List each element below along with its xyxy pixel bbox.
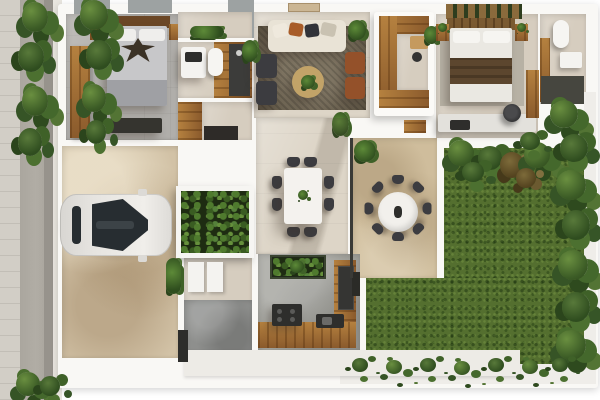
- grass-fringe: [352, 358, 368, 372]
- stair-tread-2: [207, 262, 223, 292]
- bathroom1-toilet: [208, 48, 223, 76]
- bathroom2-vanity: [560, 52, 582, 68]
- side-hedge-bush: [556, 170, 586, 200]
- outdoor-chair: [423, 203, 432, 215]
- bedroom2-wardrobe-strip: [526, 70, 539, 118]
- dining-centerpiece: [298, 190, 308, 200]
- street-verge-hedge: [22, 2, 48, 32]
- street-verge-hedge-bottom: [40, 376, 60, 396]
- street-verge-hedge: [18, 42, 44, 72]
- hedge-by-stairs: [166, 258, 181, 294]
- garden-hedge-bush-brown: [516, 168, 536, 188]
- facade-vine: [86, 120, 106, 144]
- facade-vine: [82, 84, 106, 112]
- stair-tread-1: [188, 262, 204, 292]
- sofa-pillow-2: [288, 22, 304, 37]
- sofa-pillow-3: [304, 23, 320, 38]
- dining-chair: [324, 198, 334, 211]
- dining-chair: [272, 176, 282, 189]
- bedroom2-pergola-slats: [446, 4, 522, 19]
- street-curb: [44, 0, 53, 400]
- street-verge-hedge-bottom: [16, 372, 40, 396]
- leather-chair-2: [345, 77, 365, 99]
- nightstand2-plant-right: [517, 23, 526, 32]
- foyer-cement-floor: [184, 300, 252, 352]
- living-wall-art: [288, 3, 320, 12]
- side-hedge-bush: [562, 210, 590, 240]
- armchair-left-1: [256, 54, 277, 78]
- bed1-pillow-left: [110, 29, 136, 41]
- floorplan-render: [0, 0, 600, 400]
- hallway-door-shadow: [204, 126, 238, 140]
- desk-laptop: [450, 120, 470, 130]
- armchair-left-2: [256, 81, 277, 105]
- bathroom2-toilet: [553, 20, 569, 48]
- nightstand1-right: [169, 24, 178, 40]
- side-hedge-bush: [562, 292, 590, 322]
- car-mirror-bottom: [138, 255, 147, 262]
- entry-planter-plants: [181, 191, 249, 253]
- side-hedge-bush: [558, 250, 588, 280]
- living-plant-nw: [242, 40, 258, 62]
- coffee-table-plant: [301, 75, 315, 89]
- facade-vine: [80, 0, 108, 30]
- outdoor-chair: [392, 232, 404, 241]
- dining-chair: [304, 157, 317, 167]
- stove-burner-1: [277, 309, 282, 314]
- closet-shelf-bottom: [379, 90, 429, 108]
- outdoor-table-centerpiece: [394, 206, 402, 218]
- bed2-pillow-left: [453, 31, 480, 43]
- side-hedge-bush: [560, 134, 588, 162]
- grass-fringe: [522, 360, 538, 374]
- bed1-foot-fold: [107, 80, 167, 106]
- leather-chair-1: [345, 52, 365, 74]
- bathroom1-sink: [185, 52, 202, 62]
- kitchen-planter-fern: [290, 260, 304, 273]
- bed2-throw: [450, 58, 512, 84]
- dining-chair: [304, 227, 317, 237]
- stove-burner-3: [277, 317, 282, 322]
- corridor-bench: [404, 120, 426, 133]
- stove-burner-2: [290, 309, 295, 314]
- bathroom1-green-wall: [190, 26, 224, 38]
- street-sidewalk: [0, 0, 20, 400]
- street-verge-hedge: [22, 86, 48, 116]
- garden-hedge-bush: [462, 162, 484, 182]
- dining-chair: [287, 227, 300, 237]
- kitchen-island-stove: [272, 304, 302, 326]
- car-mirror-top: [138, 189, 147, 196]
- street-verge-hedge: [18, 128, 42, 156]
- living-plant-ne: [348, 20, 366, 40]
- outdoor-chair: [365, 203, 374, 215]
- closet-stool: [412, 52, 422, 62]
- bedroom2-corner-bush: [520, 132, 540, 150]
- dining-chair: [287, 157, 300, 167]
- grass-fringe: [552, 358, 568, 372]
- bed2-pillow-right: [483, 31, 510, 43]
- terrace-plant: [354, 140, 376, 162]
- side-hedge-bush: [556, 330, 586, 360]
- outdoor-chair: [392, 175, 404, 184]
- dining-chair: [324, 176, 334, 189]
- terrace-glazing-frame: [350, 138, 353, 278]
- bed1-bench: [110, 118, 162, 133]
- bed1-pillow-right: [139, 29, 165, 41]
- grass-fringe: [420, 358, 436, 372]
- hallway-wood-floor: [178, 102, 202, 140]
- stove-burner-4: [290, 317, 295, 322]
- grass-fringe: [386, 360, 402, 374]
- neighbor-roof-slab-2: [128, 0, 172, 13]
- kitchen-sink: [322, 317, 332, 325]
- car-roof-bar: [96, 221, 134, 229]
- office-chair: [503, 104, 521, 122]
- side-hedge-bush: [550, 100, 578, 128]
- car-rear-window: [72, 206, 81, 244]
- sofa-pillow-4: [320, 22, 337, 38]
- dining-chair: [272, 198, 282, 211]
- grass-fringe: [454, 361, 470, 375]
- facade-vine: [86, 40, 112, 70]
- terrace-door-frame: [352, 272, 360, 296]
- grass-fringe: [488, 358, 504, 372]
- foyer-dark-wall: [178, 330, 188, 362]
- nightstand2-plant-left: [438, 23, 447, 32]
